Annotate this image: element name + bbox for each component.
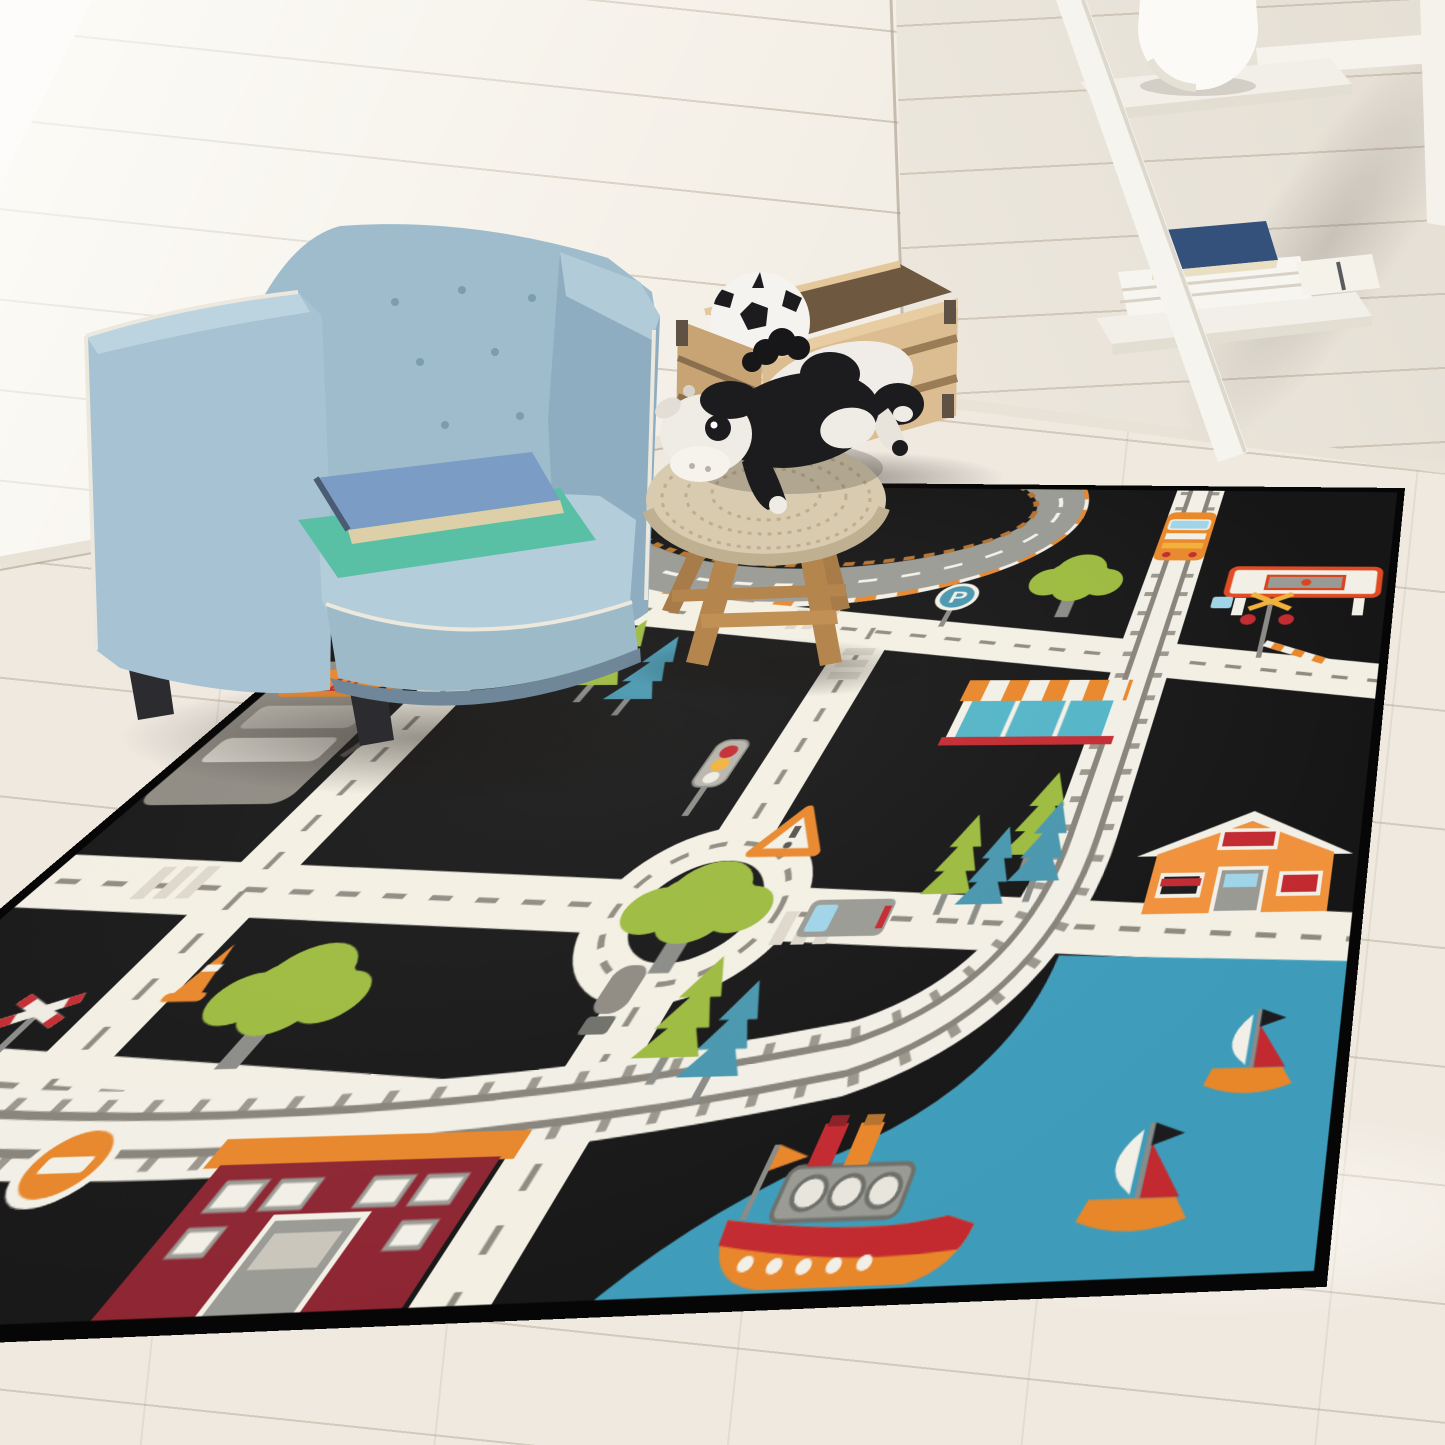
baseboard-right [905, 397, 1445, 468]
window-light [0, 0, 92, 188]
cow-nostril [705, 466, 711, 472]
cow-crown [700, 381, 760, 419]
cow-muzzle [670, 446, 730, 482]
ladder-shelf [1056, 0, 1445, 486]
cow-hoof [769, 496, 787, 514]
playroom-scene: 19 P [0, 0, 1445, 1445]
chair-left-arm [86, 292, 332, 693]
cow-blaze [893, 406, 913, 422]
stool-shadow [622, 638, 922, 698]
cow-hoof [892, 440, 908, 456]
furniture-layer [0, 0, 1445, 1445]
cow-horn [683, 385, 695, 397]
cow-eye [711, 422, 718, 429]
cow-eye-patch [705, 415, 731, 441]
cow-nostril [689, 463, 695, 469]
armchair [86, 224, 740, 796]
